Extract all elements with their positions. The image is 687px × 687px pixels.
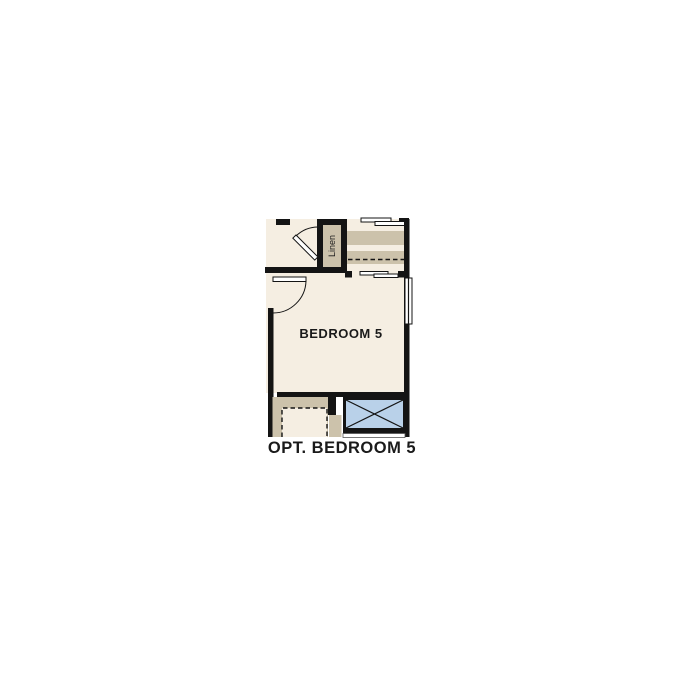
- optional-closet-fill: [282, 408, 327, 437]
- opening-mid-cap-left: [345, 271, 352, 278]
- wall-closet-stub: [328, 396, 336, 415]
- bedroom-label: BEDROOM 5: [299, 326, 382, 341]
- closet-shelf-lower: [347, 251, 404, 264]
- shower-pan: [343, 399, 409, 438]
- linen-closet: Linen: [317, 219, 347, 273]
- plan-caption: OPT. BEDROOM 5: [268, 439, 416, 457]
- linen-wall-top: [317, 219, 347, 225]
- closet-side-fill: [329, 415, 342, 437]
- wall-bedroom-bottom: [277, 392, 408, 397]
- opening-mid-cap-right: [398, 271, 405, 278]
- door-leaf: [273, 277, 306, 282]
- optional-closet: [273, 396, 342, 437]
- linen-wall-right: [341, 219, 347, 273]
- wall-mid-horizontal: [265, 267, 347, 273]
- floor-plan: Linen: [0, 0, 687, 687]
- opening-mid-line-2: [374, 274, 398, 278]
- closet-shelf-upper: [347, 231, 404, 245]
- shower-threshold: [343, 434, 405, 438]
- linen-label: Linen: [327, 235, 337, 257]
- right-window: [405, 278, 412, 324]
- wall-top-left-segment: [276, 219, 290, 225]
- opening-top-line-2: [375, 222, 408, 226]
- page-canvas: Linen: [0, 0, 687, 687]
- shower-bottom-wall: [343, 429, 409, 434]
